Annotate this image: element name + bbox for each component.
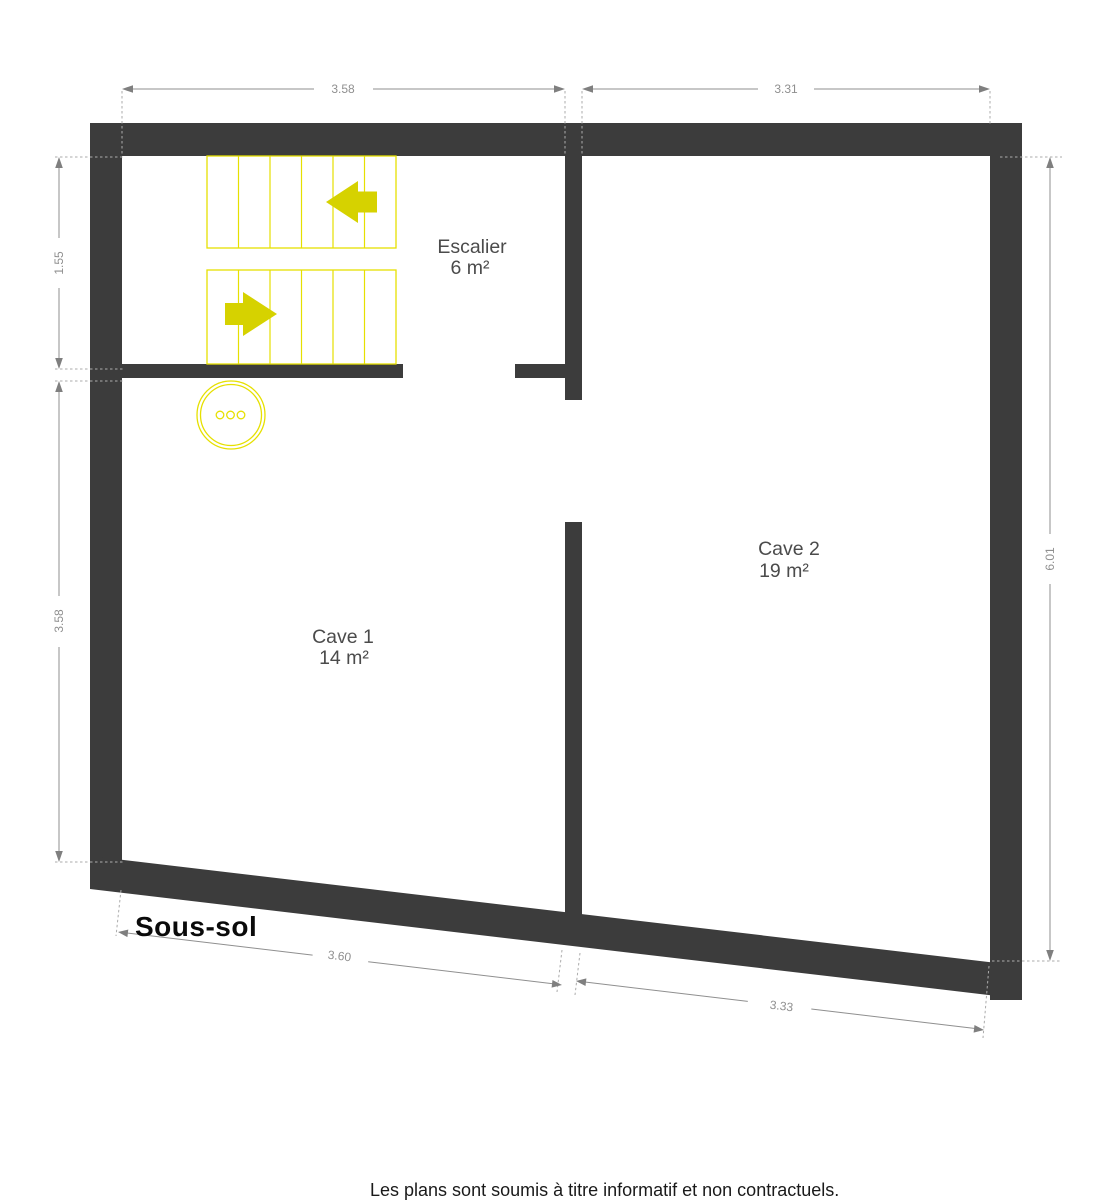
staircase	[207, 156, 396, 364]
dimension-label: 3.31	[774, 82, 798, 96]
floor-plan: 3.58 3.31 1.55 3.58 6.01	[0, 0, 1113, 1200]
floor-plan-drawing: 3.58 3.31 1.55 3.58 6.01	[0, 0, 1113, 1200]
dimension-label: 3.60	[327, 948, 352, 965]
wall-left	[90, 123, 122, 889]
walls	[90, 123, 1022, 1000]
wall-partition-upper	[565, 156, 582, 400]
wall-interior-stair	[122, 364, 403, 378]
dimension-label: 3.58	[52, 609, 66, 633]
room-name-cave2: Cave 2	[758, 538, 820, 560]
floor-title: Sous-sol	[135, 911, 257, 943]
room-area-cave2: 19 m²	[759, 560, 809, 582]
disclaimer-text: Les plans sont soumis à titre informatif…	[370, 1180, 839, 1201]
room-area-escalier: 6 m²	[451, 257, 491, 279]
wall-top	[90, 123, 1022, 156]
dimension-label: 3.58	[331, 82, 355, 96]
dimension-label: 1.55	[52, 251, 66, 275]
wall-interior-stub	[515, 364, 565, 378]
wall-partition-lower	[565, 522, 582, 916]
room-name-cave1: Cave 1	[312, 626, 374, 648]
room-name-escalier: Escalier	[437, 236, 507, 258]
dimension-label: 3.33	[769, 998, 794, 1015]
room-area-cave1: 14 m²	[319, 647, 369, 669]
water-heater-icon	[197, 381, 265, 449]
dimension-label: 6.01	[1043, 547, 1057, 571]
wall-right	[990, 123, 1022, 1000]
